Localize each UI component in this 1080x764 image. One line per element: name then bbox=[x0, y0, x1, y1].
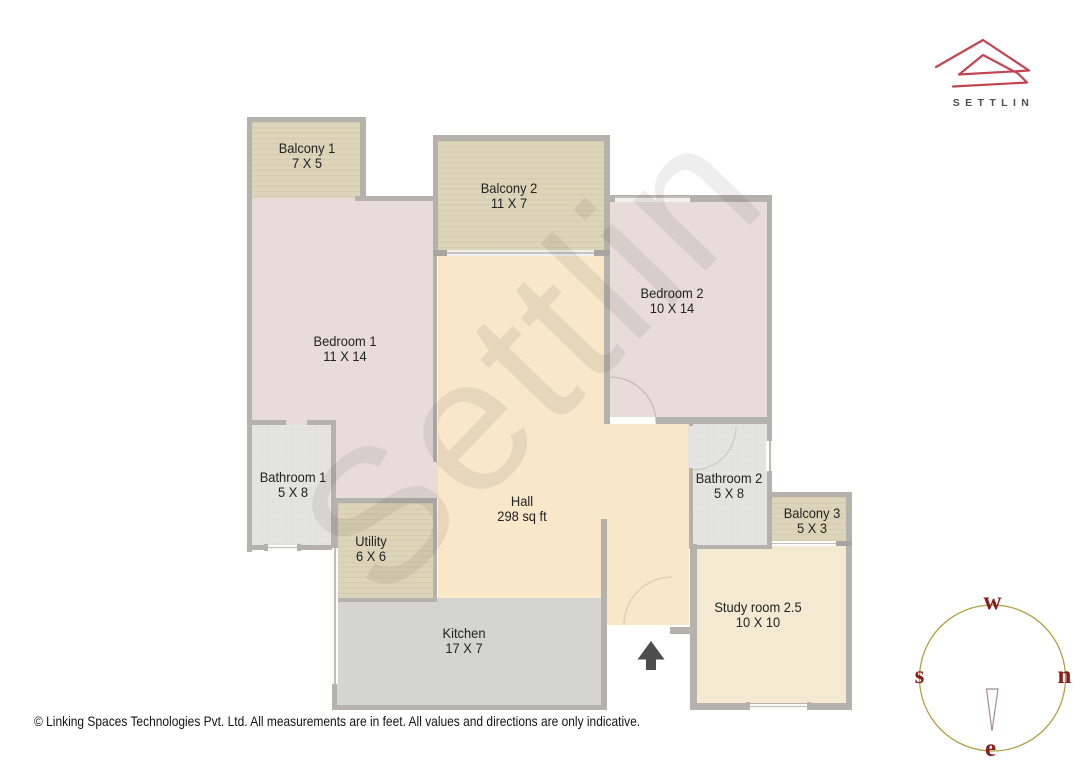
svg-text:w: w bbox=[983, 588, 1001, 615]
svg-text:e: e bbox=[985, 735, 996, 762]
svg-text:n: n bbox=[1058, 662, 1072, 689]
svg-text:s: s bbox=[915, 662, 925, 689]
